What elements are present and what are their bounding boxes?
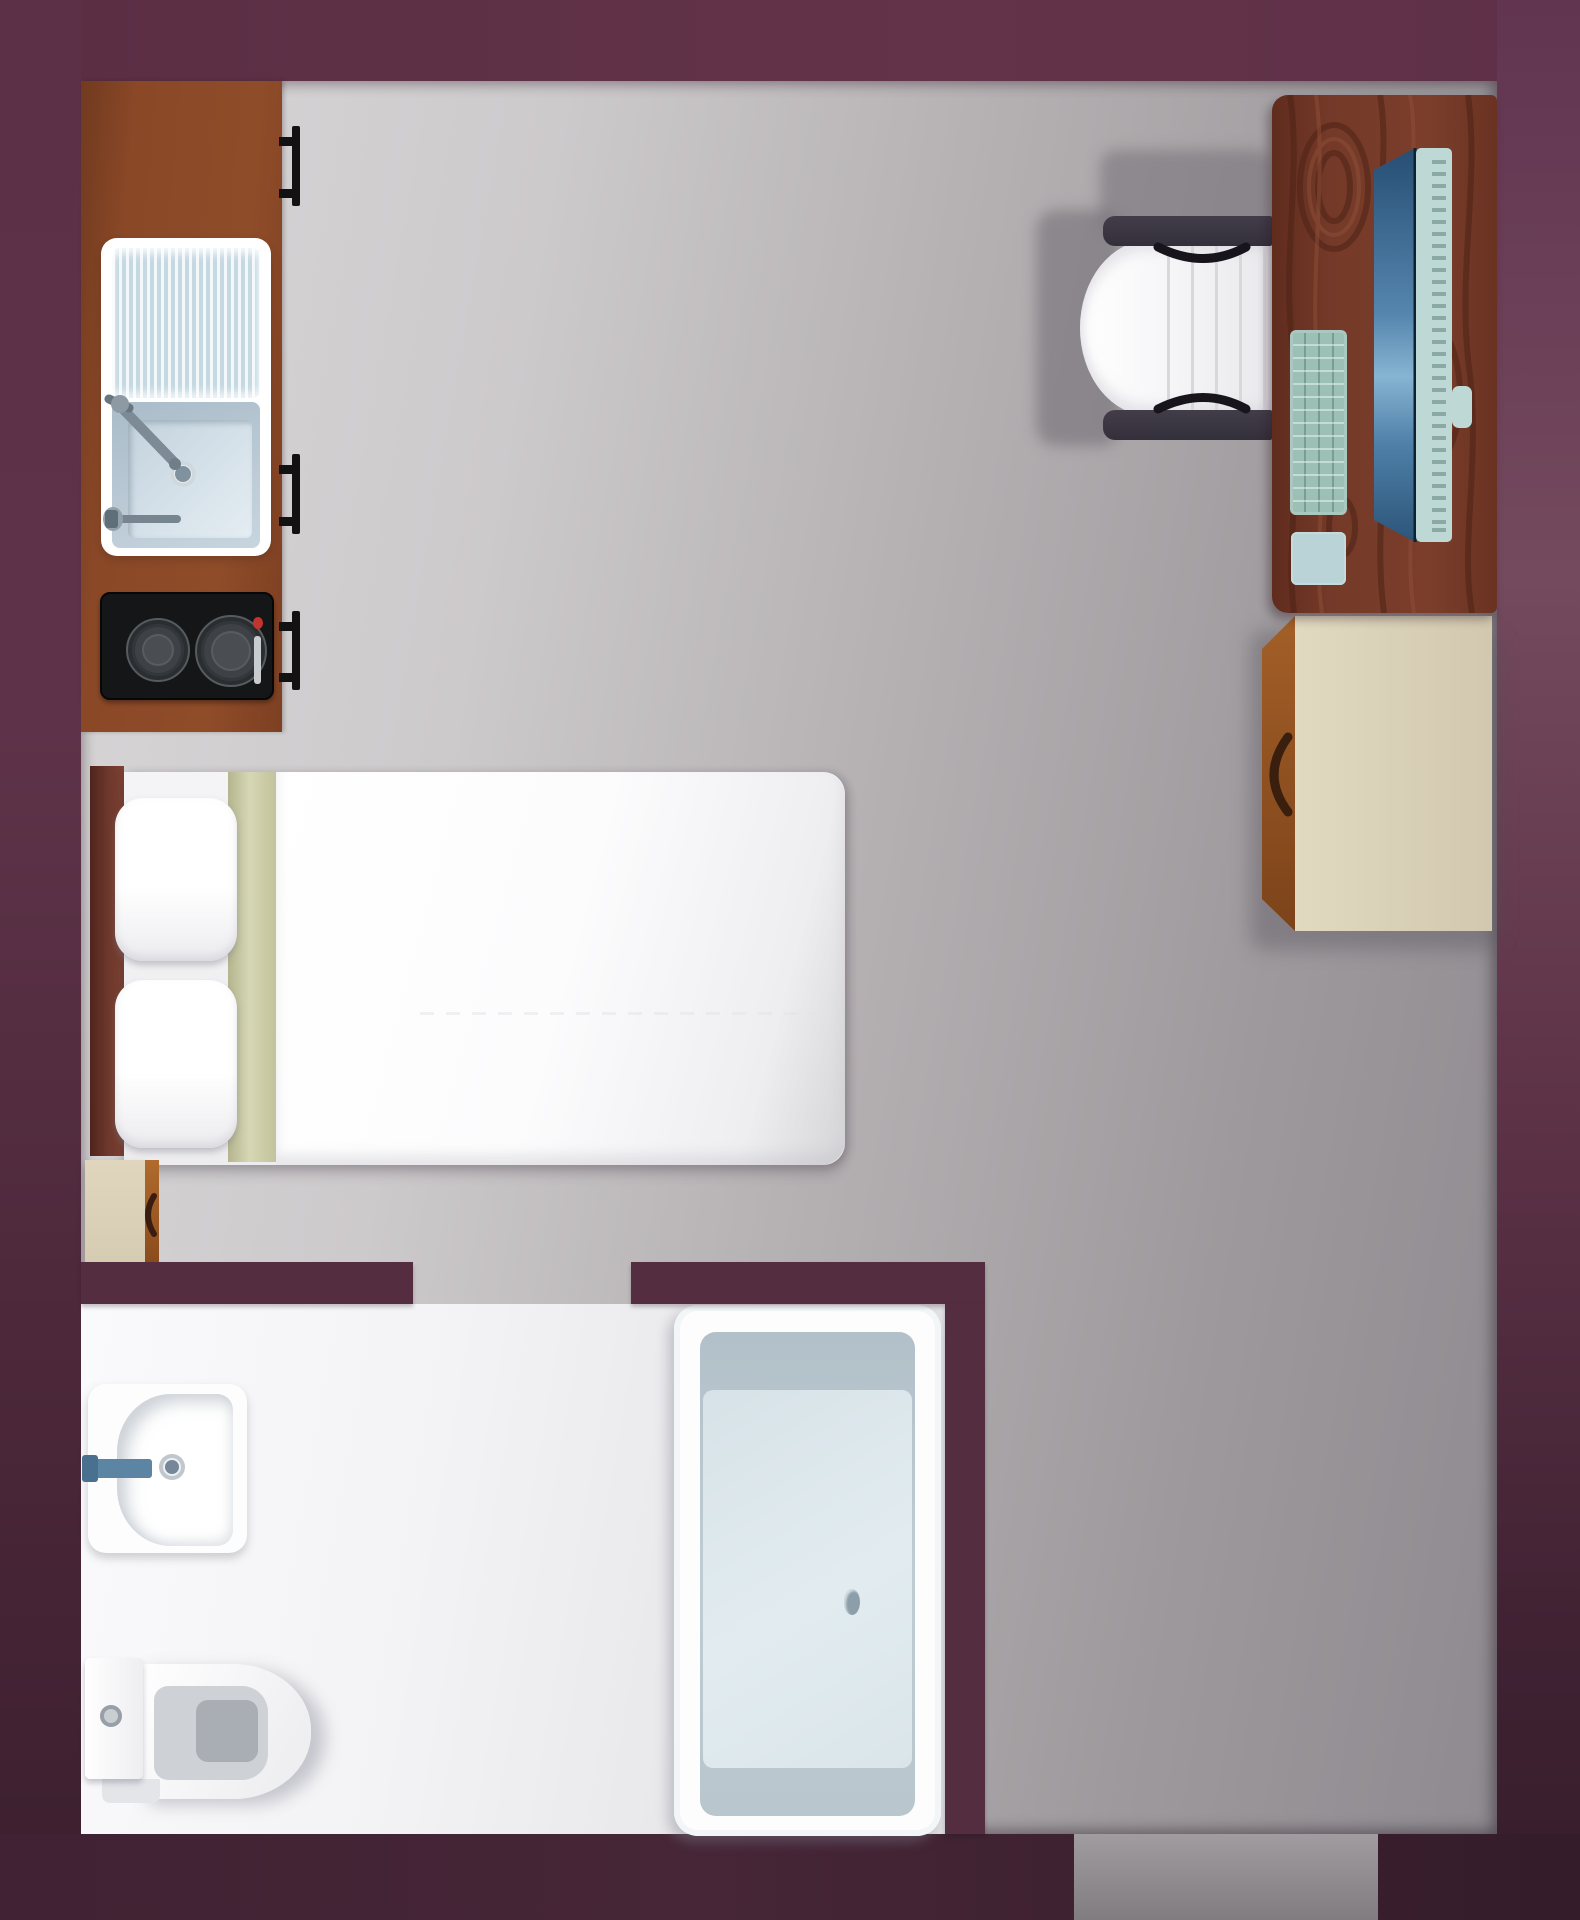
monitor bbox=[1370, 140, 1482, 552]
duvet-crease bbox=[420, 1012, 820, 1015]
toilet-bowl-opening bbox=[196, 1700, 258, 1762]
monitor-stand bbox=[1452, 386, 1472, 428]
toilet-bowl bbox=[135, 1664, 311, 1799]
wall-top bbox=[0, 0, 1580, 81]
stove bbox=[100, 592, 274, 700]
bathtub-basin bbox=[703, 1390, 912, 1768]
kitchen-faucet bbox=[101, 238, 271, 556]
dresser bbox=[1258, 612, 1498, 942]
bathtub bbox=[674, 1305, 941, 1836]
entry-doorway bbox=[1074, 1834, 1378, 1920]
bathroom-faucet-valve bbox=[82, 1455, 98, 1482]
cabinet-handle bbox=[292, 126, 300, 206]
cabinet-handle-tick bbox=[279, 137, 293, 146]
stove-control-strip bbox=[254, 636, 261, 684]
toilet-supply-line bbox=[102, 1779, 160, 1803]
duvet bbox=[276, 772, 845, 1165]
chair-handle-top bbox=[1158, 247, 1246, 259]
nightstand-handle bbox=[138, 1190, 168, 1240]
bathroom-wall-right-segment bbox=[631, 1262, 985, 1304]
stove-burner-left bbox=[126, 618, 190, 682]
mouse-pad bbox=[1291, 532, 1346, 585]
bathtub-drain bbox=[844, 1589, 860, 1615]
toilet-flush-button bbox=[100, 1705, 122, 1727]
keyboard bbox=[1290, 330, 1347, 515]
cabinet-handle-tick bbox=[279, 189, 293, 198]
monitor-screen bbox=[1374, 148, 1415, 542]
office-chair-handles bbox=[1140, 230, 1280, 430]
monitor-back-panel bbox=[1416, 148, 1452, 542]
chair-handle-bottom bbox=[1158, 398, 1246, 410]
bathroom-wall-vertical-segment bbox=[945, 1304, 985, 1834]
wall-left bbox=[0, 0, 81, 1920]
stove-indicator-light bbox=[253, 617, 263, 629]
cabinet-handle-tick bbox=[279, 673, 293, 682]
cabinet-handle bbox=[292, 611, 300, 690]
cabinet-handle bbox=[292, 454, 300, 534]
bathroom-sink-drain bbox=[159, 1454, 185, 1480]
kitchen-sink bbox=[101, 238, 271, 556]
pillow-top bbox=[115, 798, 237, 961]
floor-plan bbox=[0, 0, 1580, 1920]
pillow-bottom bbox=[115, 980, 237, 1148]
cabinet-handle-tick bbox=[279, 622, 293, 631]
cabinet-handle-tick bbox=[279, 517, 293, 526]
wall-right bbox=[1497, 0, 1580, 1920]
nightstand bbox=[85, 1160, 145, 1263]
bathroom-wall-left-segment bbox=[81, 1262, 413, 1304]
cabinet-handle-tick bbox=[279, 465, 293, 474]
